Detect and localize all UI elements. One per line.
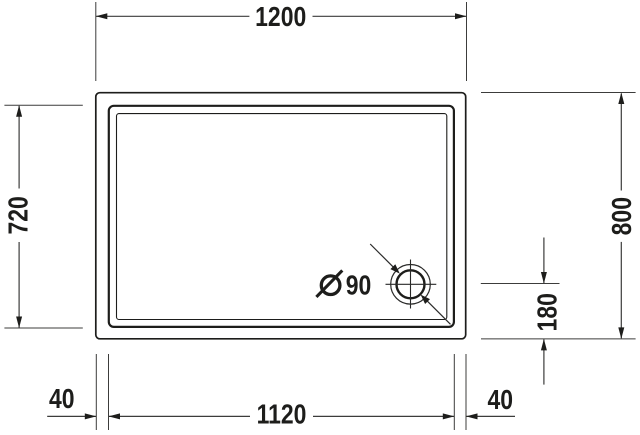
svg-text:800: 800	[607, 197, 638, 235]
svg-text:40: 40	[49, 384, 75, 415]
svg-text:1120: 1120	[257, 400, 307, 431]
svg-text:90: 90	[346, 271, 372, 302]
svg-text:1200: 1200	[255, 2, 306, 33]
svg-text:720: 720	[4, 196, 35, 234]
svg-text:40: 40	[488, 385, 514, 416]
svg-text:180: 180	[532, 293, 563, 331]
